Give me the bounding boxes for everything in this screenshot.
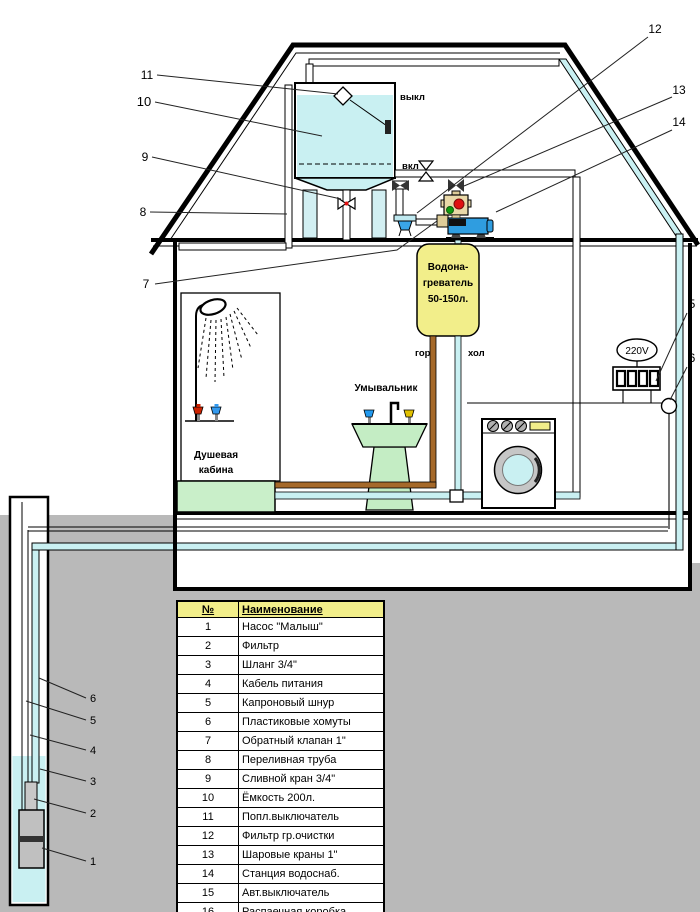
header-num: № (177, 601, 239, 618)
callout-10: 10 (137, 94, 151, 109)
row-name: Распаечная коробка (239, 903, 385, 912)
row-name: Переливная труба (239, 751, 385, 770)
row-name: Шаровые краны 1" (239, 846, 385, 865)
row-num: 11 (177, 808, 239, 827)
row-num: 15 (177, 884, 239, 903)
row-num: 6 (177, 713, 239, 732)
header-name: Наименование (239, 601, 385, 618)
table-row: 6Пластиковые хомуты (177, 713, 384, 732)
row-num: 13 (177, 846, 239, 865)
shower-head (198, 296, 227, 317)
row-name: Авт.выключатель (239, 884, 385, 903)
switch-contact (385, 120, 391, 134)
tank-leg (303, 190, 317, 238)
table-row: 7Обратный клапан 1" (177, 732, 384, 751)
coarse-filter (394, 215, 416, 236)
table-row: 4Кабель питания (177, 675, 384, 694)
table-row: 15Авт.выключатель (177, 884, 384, 903)
table-header-row: № Наименование (177, 601, 384, 618)
washer-display (530, 422, 550, 430)
row-num: 12 (177, 827, 239, 846)
callout-6: 6 (90, 693, 96, 705)
table-row: 12Фильтр гр.очистки (177, 827, 384, 846)
water-supply-scheme: выкл вкл (0, 0, 700, 912)
table-row: 14Станция водоснаб. (177, 865, 384, 884)
label-hot: гор (415, 348, 431, 359)
callout-16: 6 (689, 351, 696, 365)
overflow-pipe (179, 85, 292, 250)
label-shower-1: Душевая (194, 450, 238, 461)
hot-pipe-horizontal (275, 482, 436, 488)
callout-8: 8 (140, 205, 147, 219)
pipe-junction (450, 490, 463, 502)
cold-tap-icon (211, 404, 221, 421)
basin-pedestal (366, 447, 413, 510)
foundation-space (175, 515, 690, 589)
callout-5: 5 (90, 715, 96, 727)
shower-pipe (196, 304, 207, 421)
row-num: 3 (177, 656, 239, 675)
cold-pipe-vertical (455, 336, 461, 497)
shower-cabin (177, 293, 280, 512)
row-num: 9 (177, 770, 239, 789)
heater-label-3: 50-150л. (428, 294, 468, 305)
well (10, 497, 48, 905)
table-row: 2Фильтр (177, 637, 384, 656)
callout-14: 14 (672, 115, 686, 129)
heater-label-1: Водона- (428, 262, 469, 273)
row-name: Сливной кран 3/4" (239, 770, 385, 789)
callout-15: 5 (689, 297, 696, 311)
row-num: 4 (177, 675, 239, 694)
callout-2: 2 (90, 808, 96, 820)
pump-station (446, 218, 494, 238)
label-220v: 220V (625, 346, 649, 357)
row-num: 16 (177, 903, 239, 912)
ball-valve-top (448, 179, 464, 192)
row-name: Фильтр гр.очистки (239, 827, 385, 846)
row-name: Капроновый шнур (239, 694, 385, 713)
row-name: Станция водоснаб. (239, 865, 385, 884)
table-row: 5Капроновый шнур (177, 694, 384, 713)
underground-water-pipe (32, 543, 679, 550)
riser-pipe (573, 177, 580, 497)
table-row: 3Шланг 3/4" (177, 656, 384, 675)
parts-table: № Наименование 1Насос "Малыш" 2Фильтр 3Ш… (176, 600, 385, 912)
row-num: 8 (177, 751, 239, 770)
shower-tray (177, 481, 275, 512)
label-cold: хол (468, 348, 485, 359)
faucet (391, 403, 398, 424)
washer-door-glass (503, 455, 534, 486)
row-name: Фильтр (239, 637, 385, 656)
table-row: 9Сливной кран 3/4" (177, 770, 384, 789)
table-row: 16Распаечная коробка (177, 903, 384, 912)
basin-bowl (352, 424, 427, 447)
hot-pipe-vertical (430, 336, 436, 487)
callout-9: 9 (142, 150, 149, 164)
pump-filter (25, 782, 37, 810)
row-num: 2 (177, 637, 239, 656)
row-num: 1 (177, 618, 239, 637)
circuit-breaker (613, 367, 660, 390)
row-name: Ёмкость 200л. (239, 789, 385, 808)
pump-control-box (441, 195, 471, 215)
table-row: 13Шаровые краны 1" (177, 846, 384, 865)
callout-13: 13 (672, 83, 686, 97)
junction-box (662, 399, 677, 414)
callout-4: 4 (90, 745, 96, 757)
hot-tap-icon (193, 404, 203, 421)
storage-tank (295, 83, 395, 240)
table-row: 11Попл.выключатель (177, 808, 384, 827)
callout-11: 11 (141, 68, 154, 82)
label-sink: Умывальник (355, 383, 419, 394)
row-num: 5 (177, 694, 239, 713)
basin-cold-tap-icon (364, 410, 374, 423)
callout-12: 12 (648, 22, 662, 36)
tank-leg (372, 190, 386, 238)
row-name: Кабель питания (239, 675, 385, 694)
row-name: Пластиковые хомуты (239, 713, 385, 732)
row-name: Обратный клапан 1" (239, 732, 385, 751)
label-off-level: выкл (400, 92, 425, 103)
callout-1: 1 (90, 856, 96, 868)
drain-pipe (343, 190, 350, 240)
callout-7: 7 (143, 277, 150, 291)
row-num: 14 (177, 865, 239, 884)
row-num: 7 (177, 732, 239, 751)
row-name: Попл.выключатель (239, 808, 385, 827)
pump-band (19, 836, 44, 842)
callout-3: 3 (90, 776, 96, 788)
row-name: Насос "Малыш" (239, 618, 385, 637)
row-num: 10 (177, 789, 239, 808)
shower-spray (198, 308, 258, 382)
green-button (447, 207, 454, 214)
table-row: 1Насос "Малыш" (177, 618, 384, 637)
table-row: 10Ёмкость 200л. (177, 789, 384, 808)
washer-knobs (488, 421, 527, 432)
washing-machine (482, 419, 555, 508)
table-row: 8Переливная труба (177, 751, 384, 770)
tank-inlet-pipe (395, 170, 575, 177)
red-button (454, 199, 464, 209)
heater-label-2: греватель (423, 278, 473, 289)
tank-cone (295, 178, 395, 190)
basin-hot-tap-icon (404, 410, 414, 423)
tank-water (297, 95, 393, 177)
well-hose (32, 549, 39, 783)
row-name: Шланг 3/4" (239, 656, 385, 675)
check-valve (437, 215, 448, 227)
label-shower-2: кабина (199, 464, 234, 476)
